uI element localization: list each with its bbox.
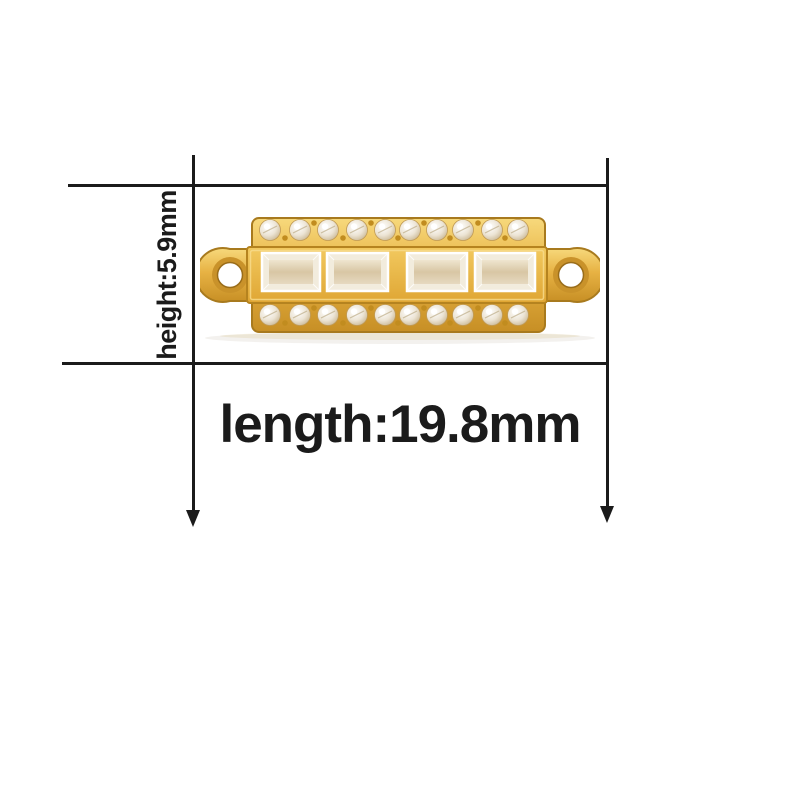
baguette-crystal	[407, 253, 467, 291]
length-dimension-label: length:19.8mm	[150, 396, 650, 454]
baguette-crystal	[475, 253, 535, 291]
product-dimension-diagram: height:5.9mm length:19.8mm	[0, 0, 800, 800]
height-dimension-label: height:5.9mm	[151, 155, 183, 395]
product-image	[200, 205, 600, 350]
arrow-down-icon	[186, 510, 200, 527]
pave-body	[247, 218, 547, 332]
arrow-down-icon	[600, 506, 614, 523]
height-extent-line-top	[68, 184, 608, 187]
baguette-band	[247, 247, 547, 303]
length-extent-line-left	[192, 155, 195, 512]
baguette-crystal	[262, 253, 320, 291]
baguette-crystal	[327, 253, 388, 291]
length-extent-line-right	[606, 158, 609, 508]
height-extent-line-bottom	[62, 362, 608, 365]
